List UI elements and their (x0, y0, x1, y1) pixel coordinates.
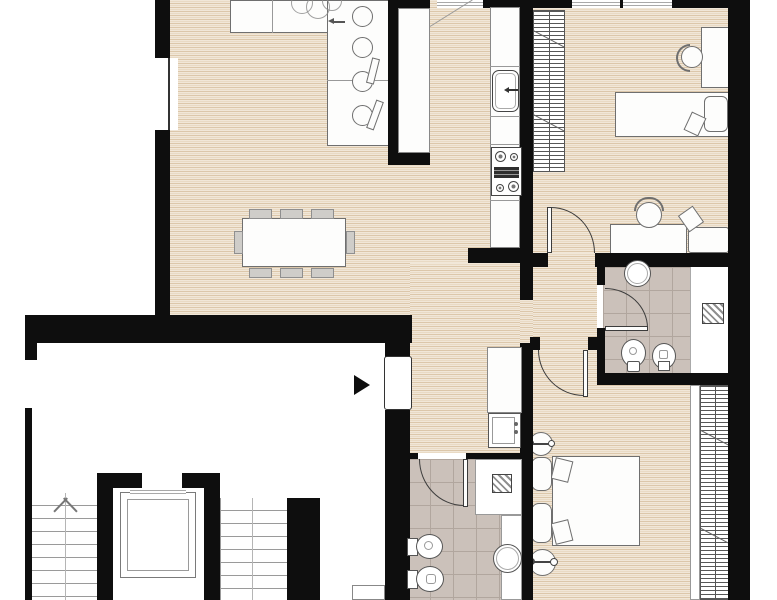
lamp-arrow-head (328, 18, 334, 24)
sofa-seam (272, 0, 273, 33)
washing-machine (702, 303, 724, 324)
kitchen-cabinet-column (398, 8, 430, 153)
dining-table (242, 218, 346, 267)
hall-appliance-drum (492, 417, 515, 444)
counter-divider (490, 144, 520, 145)
window-bedroom1-b (623, 0, 672, 8)
wall (595, 253, 730, 267)
wardrobe2-side-panel (690, 385, 700, 600)
nightstand-bottom (531, 503, 552, 543)
faucet-arrow (504, 87, 509, 93)
counter-divider (490, 66, 520, 67)
sofa-cushion-1 (352, 6, 373, 27)
wall (597, 267, 605, 285)
wall (25, 315, 412, 343)
burner (510, 153, 518, 161)
wall (155, 0, 170, 58)
wall (388, 0, 398, 165)
appliance-knob (514, 430, 518, 434)
armchair-bedroom1 (688, 227, 729, 253)
elevator-car-inner (127, 499, 189, 571)
dining-chair (234, 231, 243, 254)
toilet-detail (629, 347, 637, 355)
dining-chair (249, 268, 272, 278)
stairs-right-divider (252, 498, 253, 600)
single-bed-1-pillow (704, 96, 728, 132)
dining-chair (280, 209, 303, 219)
wall (530, 337, 540, 350)
bidet2-detail (426, 574, 436, 584)
floor-plan (0, 0, 777, 600)
dining-chair (249, 209, 272, 219)
window-living-glass (168, 58, 170, 130)
appliance-knob (514, 422, 518, 426)
sofa-cushion-2 (352, 37, 373, 58)
lamp-bottom-ring (550, 558, 558, 566)
outer-wall-right (728, 0, 750, 600)
washbasin-2-inner (496, 547, 519, 570)
wall (520, 253, 548, 267)
window-bedroom1-a (572, 0, 620, 8)
wall (25, 408, 32, 600)
stairs-left-divider (65, 493, 66, 600)
entrance-door (384, 356, 412, 410)
desk-bedroom1-right (701, 27, 730, 88)
elevator-shaft-wall (182, 473, 220, 488)
elevator-shaft-wall (97, 473, 113, 600)
lamp-top-ring (548, 440, 555, 447)
shower-drain (492, 474, 512, 493)
dining-chair (280, 268, 303, 278)
hall-cabinet (487, 347, 522, 413)
stairs-left (32, 493, 100, 600)
burner (495, 151, 506, 162)
wall (155, 130, 170, 315)
kitchen-counter (490, 7, 520, 248)
threshold-marker (352, 585, 385, 600)
stove-grill (494, 167, 519, 178)
bidet-detail (659, 350, 668, 359)
corridor-floor (533, 253, 597, 350)
counter-divider (490, 116, 520, 117)
wall (25, 343, 37, 360)
bidet-tank (658, 361, 670, 371)
faucet-line (509, 89, 518, 91)
counter-divider (490, 200, 520, 201)
wall (388, 153, 430, 165)
lamp-arrow-line (333, 21, 345, 23)
wall (672, 0, 730, 8)
wall (385, 343, 410, 357)
dining-chair (346, 231, 355, 254)
burner (496, 184, 504, 192)
stairs-right-edge (220, 498, 221, 600)
desk-bedroom1-bottom (610, 224, 687, 254)
elevator-door-lines (130, 488, 186, 494)
dining-chair (311, 209, 334, 219)
wall (597, 373, 730, 385)
wall (407, 453, 418, 459)
elevator-shaft-wall (97, 473, 142, 488)
entrance-arrow (354, 375, 370, 395)
elevator-shaft-wall (204, 473, 220, 600)
dining-chair (311, 268, 334, 278)
stairs-right (220, 498, 287, 600)
wardrobe-bedroom2 (700, 385, 729, 600)
desk-chair-seat (681, 46, 703, 68)
wall (287, 498, 320, 600)
washbasin-inner (627, 263, 648, 284)
wall (597, 328, 605, 373)
toilet-tank (627, 361, 640, 372)
wall (588, 337, 600, 350)
burner (508, 181, 519, 192)
wardrobe-bedroom1 (533, 10, 565, 172)
kitchen-floor (427, 0, 490, 263)
window-living (155, 58, 178, 130)
desk-chair-seat (636, 202, 662, 228)
nightstand-top (531, 457, 552, 491)
toilet2-detail (424, 541, 433, 550)
